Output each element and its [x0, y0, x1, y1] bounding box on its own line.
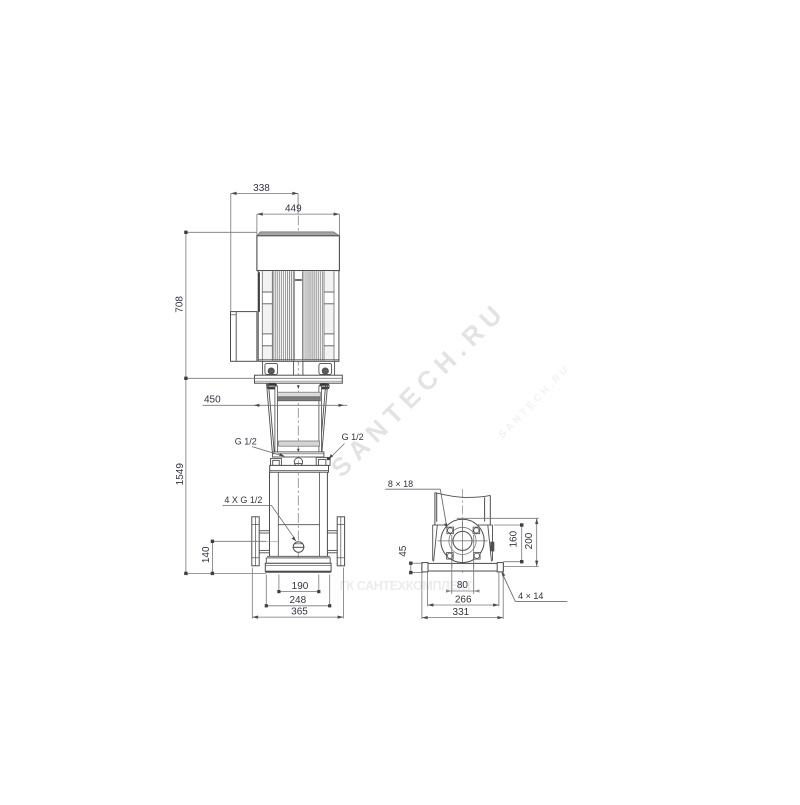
- svg-text:200: 200: [524, 532, 535, 549]
- svg-text:365: 365: [291, 607, 308, 618]
- svg-text:190: 190: [292, 581, 309, 592]
- svg-text:248: 248: [289, 595, 306, 606]
- svg-text:449: 449: [285, 204, 302, 215]
- svg-text:80: 80: [457, 580, 469, 591]
- svg-text:266: 266: [455, 595, 472, 606]
- svg-text:8 × 18: 8 × 18: [388, 479, 413, 489]
- svg-text:338: 338: [253, 183, 270, 194]
- svg-text:708: 708: [175, 296, 186, 313]
- svg-text:140: 140: [201, 546, 212, 563]
- svg-text:1549: 1549: [175, 463, 186, 486]
- svg-text:45: 45: [398, 545, 409, 557]
- svg-text:G 1/2: G 1/2: [342, 432, 364, 442]
- svg-text:450: 450: [204, 395, 221, 406]
- svg-text:4 × 14: 4 × 14: [518, 591, 543, 601]
- svg-text:160: 160: [508, 530, 519, 547]
- svg-text:331: 331: [453, 607, 470, 618]
- svg-text:4 X G 1/2: 4 X G 1/2: [224, 495, 262, 505]
- svg-text:G 1/2: G 1/2: [235, 437, 257, 447]
